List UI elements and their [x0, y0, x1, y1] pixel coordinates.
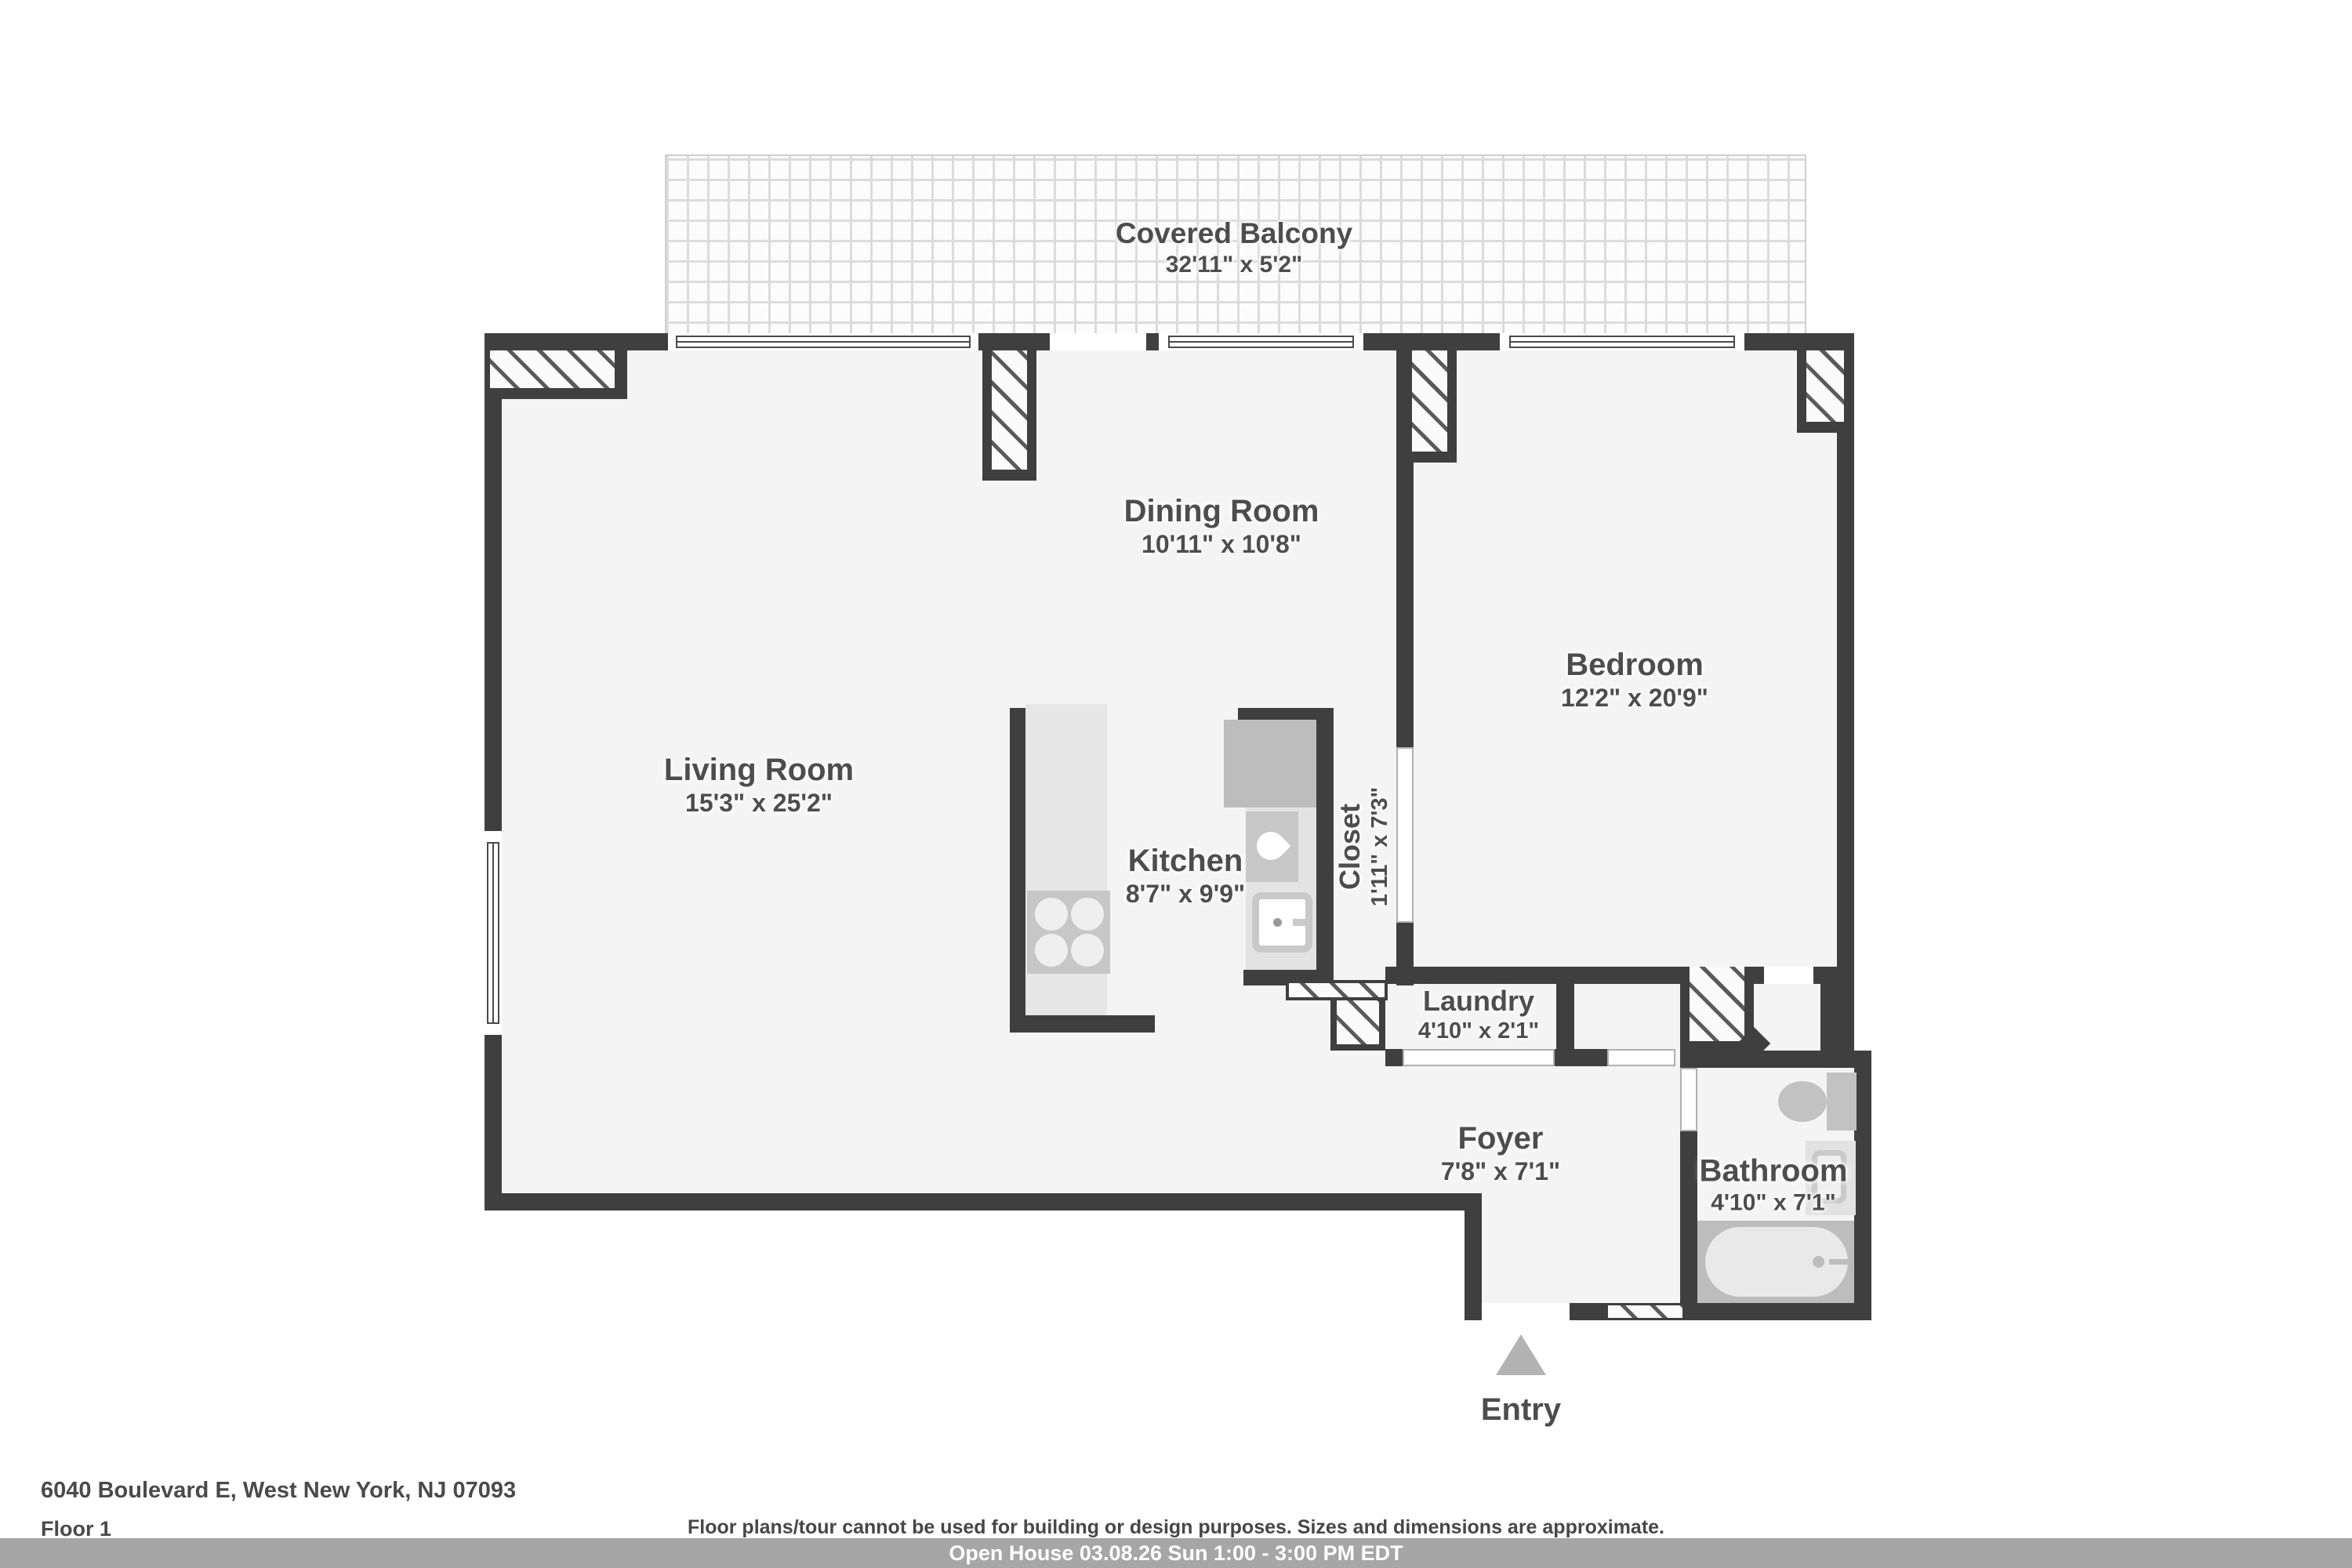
left-wall-upper [485, 333, 502, 831]
burner-icon [1071, 898, 1104, 931]
window-frame [487, 842, 499, 1024]
hatch-fill [1806, 350, 1844, 422]
bathroom-door [1680, 1068, 1697, 1131]
entry-arrow-icon [1496, 1334, 1546, 1375]
bathtub-zone [1697, 1221, 1854, 1303]
corridor-bottom-wall [1385, 1049, 1403, 1066]
structural-column [1403, 350, 1457, 463]
room-name: Kitchen [1126, 844, 1245, 878]
top-wall-segment [490, 333, 668, 350]
top-wall-segment [978, 333, 1050, 350]
bedroom-window [1500, 333, 1744, 350]
kitchen-left-wall [1010, 708, 1025, 1015]
structural-column [1330, 997, 1385, 1051]
right-wall-bedroom [1837, 350, 1854, 1064]
structural-column [490, 350, 627, 399]
living-room-window [668, 333, 978, 350]
balcony-label: Covered Balcony 32'11" x 5'2" [1116, 218, 1352, 279]
disclaimer-text: Floor plans/tour cannot be used for buil… [0, 1516, 2352, 1539]
bathtub [1705, 1227, 1848, 1297]
balcony-door-opening [1050, 333, 1146, 350]
dining-room-label: Dining Room 10'11" x 10'8" [1124, 494, 1319, 560]
closet-left-wall [1316, 708, 1334, 985]
burner-icon [1071, 934, 1104, 967]
vestibule-left-wall [1465, 1210, 1482, 1320]
window-frame [676, 336, 971, 348]
room-name: Bedroom [1561, 648, 1708, 682]
toilet-bowl [1778, 1081, 1827, 1122]
room-name: Laundry [1418, 985, 1539, 1017]
entry-vestibule-floor [1482, 1193, 1680, 1303]
hatch-fill [1690, 967, 1744, 1041]
hall-closet-door [1607, 1049, 1675, 1066]
bottom-wall [485, 1193, 1482, 1210]
structural-column [1797, 350, 1844, 433]
room-name: Covered Balcony [1116, 218, 1352, 250]
room-dims: 10'11" x 10'8" [1124, 528, 1319, 560]
top-wall-segment [1363, 333, 1500, 350]
corridor-bottom-wall [1555, 1049, 1607, 1066]
tub-faucet-line [1829, 1259, 1849, 1265]
room-name: Foyer [1441, 1121, 1560, 1156]
laundry-door [1403, 1049, 1555, 1066]
stove [1027, 891, 1110, 974]
room-dims: 8'7" x 9'9" [1126, 878, 1245, 909]
top-wall-segment [1146, 333, 1159, 350]
living-room-side-window [485, 831, 502, 1035]
bedroom-closet-opening [1764, 967, 1813, 984]
burner-icon [1035, 934, 1068, 967]
open-house-banner: Open House 03.08.26 Sun 1:00 - 3:00 PM E… [0, 1538, 2352, 1568]
kitchen-bottom-left-wall [1010, 1015, 1155, 1033]
room-dims: 12'2" x 20'9" [1561, 682, 1708, 713]
kitchen-label: Kitchen 8'7" x 9'9" [1126, 844, 1245, 909]
closet-sliding-door [1396, 747, 1414, 923]
room-name: Living Room [664, 753, 854, 787]
hatch-fill [1337, 1000, 1379, 1044]
room-dims: 4'10" x 2'1" [1418, 1017, 1539, 1045]
window-frame [1509, 336, 1735, 348]
room-dims: 4'10" x 7'1" [1700, 1188, 1848, 1218]
top-wall-segment [1744, 333, 1854, 350]
room-name: Closet [1334, 787, 1366, 907]
bedroom-label: Bedroom 12'2" x 20'9" [1561, 648, 1708, 713]
entry-door-opening [1482, 1303, 1570, 1320]
bathroom-top-wall [1680, 1051, 1871, 1068]
room-dims: 7'8" x 7'1" [1441, 1156, 1560, 1187]
laundry-label: Laundry 4'10" x 2'1" [1418, 985, 1539, 1045]
foyer-label: Foyer 7'8" x 7'1" [1441, 1121, 1560, 1187]
closet-label: Closet 1'11" x 7'3" [1334, 787, 1394, 907]
vestibule-bottom-wall [1570, 1303, 1606, 1320]
fridge [1224, 720, 1316, 808]
hatch-fill [1412, 350, 1447, 452]
room-name: Dining Room [1124, 494, 1319, 528]
tub-faucet-icon [1813, 1256, 1824, 1268]
toilet-tank [1827, 1073, 1857, 1131]
dishwasher-handle [1293, 919, 1308, 926]
entry-text: Entry [1481, 1392, 1561, 1427]
bedroom-bottom-wall-east [1813, 967, 1854, 984]
hatch-fill [1289, 983, 1385, 997]
dining-room-window [1159, 333, 1363, 350]
room-dims: 15'3" x 25'2" [664, 787, 854, 818]
structural-column [982, 350, 1036, 481]
floor-plan: Covered Balcony 32'11" x 5'2" Dining Roo… [0, 0, 2352, 1568]
left-wall-lower [485, 1035, 502, 1210]
hatch-fill [1608, 1305, 1682, 1318]
laundry-right-wall [1556, 967, 1574, 1051]
room-dims: 32'11" x 5'2" [1116, 250, 1352, 280]
dishwasher [1252, 892, 1312, 953]
bathroom-bottom-wall [1685, 1303, 1871, 1320]
kitchen-sink [1246, 811, 1298, 882]
living-room-label: Living Room 15'3" x 25'2" [664, 753, 854, 818]
window-frame [1168, 336, 1354, 348]
burner-icon [1035, 898, 1068, 931]
faucet-icon [1251, 826, 1291, 866]
bathroom-right-wall [1854, 1051, 1871, 1320]
room-name: Bathroom [1700, 1153, 1848, 1188]
property-address: 6040 Boulevard E, West New York, NJ 0709… [41, 1478, 516, 1504]
structural-wall-hatch [1606, 1303, 1685, 1320]
entry-label: Entry [1481, 1392, 1561, 1427]
hatch-fill [992, 350, 1027, 470]
bathroom-label: Bathroom 4'10" x 7'1" [1700, 1153, 1848, 1218]
hatch-fill [490, 350, 615, 388]
bedroom-closet-right-wall [1820, 984, 1838, 1051]
room-dims: 1'11" x 7'3" [1366, 787, 1394, 907]
bathroom-left-wall [1680, 1131, 1697, 1320]
dishwasher-knob [1273, 918, 1282, 927]
